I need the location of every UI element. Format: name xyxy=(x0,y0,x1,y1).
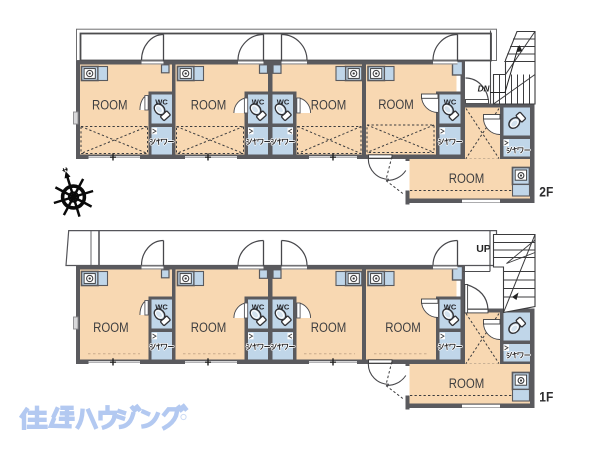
svg-text:ROOM: ROOM xyxy=(311,97,347,112)
svg-text:ROOM: ROOM xyxy=(378,97,414,112)
svg-text:WC: WC xyxy=(155,98,168,107)
svg-text:ROOM: ROOM xyxy=(92,97,128,112)
svg-text:WC: WC xyxy=(444,303,457,312)
svg-text:WC: WC xyxy=(277,98,290,107)
svg-text:1F: 1F xyxy=(539,389,553,404)
svg-text:ROOM: ROOM xyxy=(385,320,421,335)
svg-text:WC: WC xyxy=(155,303,168,312)
svg-text:WC: WC xyxy=(444,98,457,107)
svg-text:WC: WC xyxy=(252,98,265,107)
svg-text:WC: WC xyxy=(277,303,290,312)
svg-text:WC: WC xyxy=(252,303,265,312)
svg-text:2F: 2F xyxy=(539,184,553,199)
svg-text:ROOM: ROOM xyxy=(449,171,485,186)
svg-text:ROOM: ROOM xyxy=(191,97,227,112)
svg-text:UP: UP xyxy=(476,243,491,255)
svg-text:ROOM: ROOM xyxy=(311,320,347,335)
svg-text:ROOM: ROOM xyxy=(191,320,227,335)
svg-text:DN: DN xyxy=(478,85,491,94)
svg-text:ROOM: ROOM xyxy=(93,320,129,335)
svg-text:ROOM: ROOM xyxy=(449,376,485,391)
